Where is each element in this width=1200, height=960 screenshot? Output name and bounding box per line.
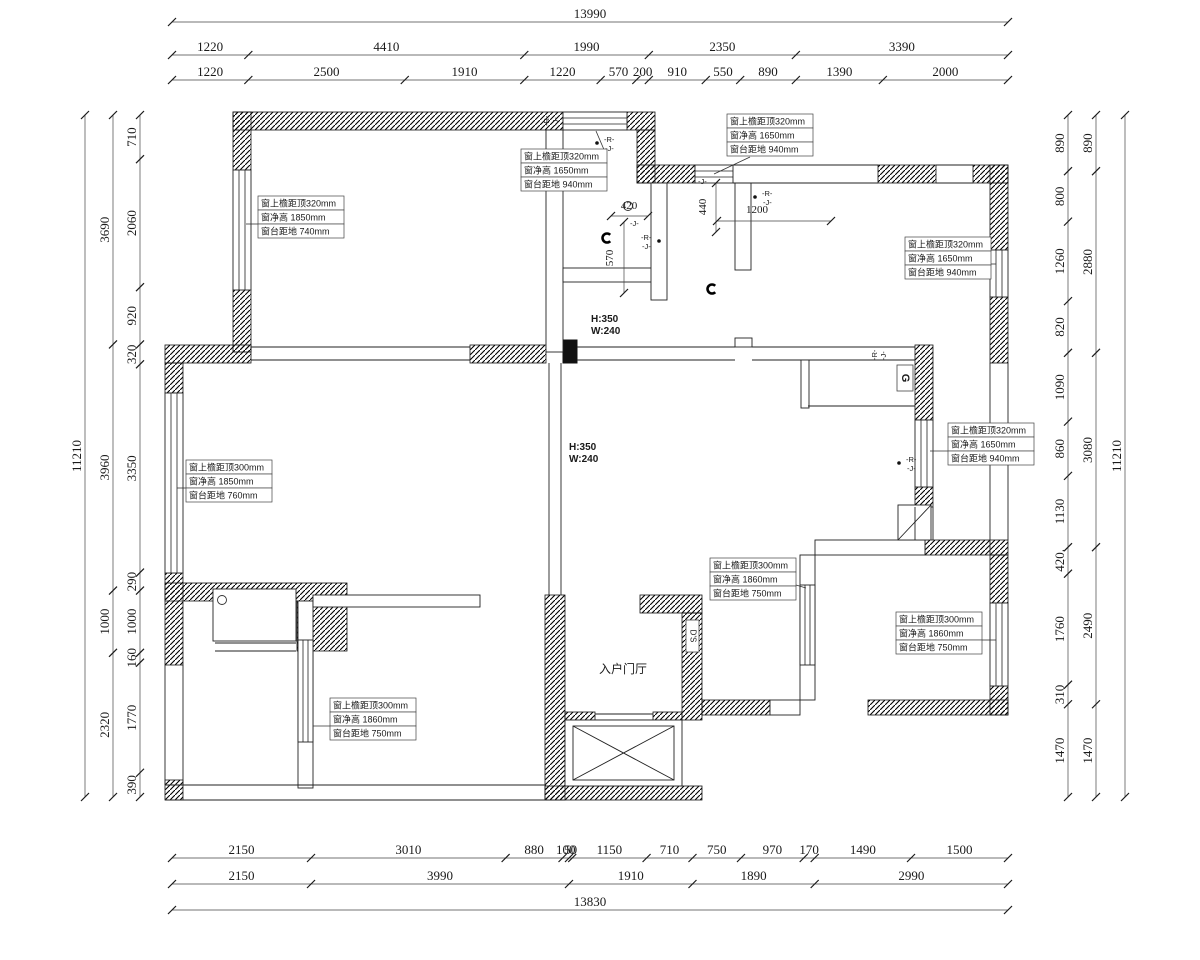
switch-marker: -R- [604,135,615,144]
room-label: 入户门厅 [599,661,647,676]
wall-segment [637,165,695,183]
window-annotation-text: 窗台距地 740mm [261,226,330,237]
switch-marker: -J- [551,117,560,126]
floor-plan-svg: 1399012204410199023503390122025001910122… [0,0,1200,960]
inline-dim-label: 440 [697,198,709,215]
dimension-label: 910 [668,64,688,79]
dimension-label: 4410 [373,39,399,54]
dimension-label: 800 [1052,187,1067,207]
dimension-label: 890 [758,64,778,79]
window-annotation-text: 窗台距地 750mm [333,728,402,739]
junction-marker: -J- [698,177,707,186]
window-annotation-text: 窗上檐距顶300mm [899,614,974,625]
dimension-label: 860 [1052,439,1067,459]
wall-segment [990,165,1008,250]
window [298,640,313,742]
wall-segment [627,112,655,130]
window-annotation-text: 窗净高 1650mm [524,165,589,176]
window [990,250,1008,297]
dimension-label: 3350 [124,455,139,481]
window-annotation-text: 窗台距地 940mm [524,179,593,190]
dimension-label: 2500 [314,64,340,79]
door-bump [735,338,752,347]
lamp-icon [708,285,716,294]
wall-segment [233,290,251,352]
flue [801,360,809,408]
switch-marker: -J- [907,464,916,473]
lamp-icon [603,233,611,242]
dimension-label: 3960 [97,455,112,481]
dimension-label: 13990 [574,6,607,21]
dimension-label: 2320 [97,712,112,738]
beam-label: H:350 [591,314,619,325]
switch-marker: -R- [542,115,551,126]
dimension-label: 1490 [850,842,876,857]
dimension-label: 2060 [124,210,139,236]
dimension-label: 970 [763,842,783,857]
dimension-label: 2490 [1080,613,1095,639]
dimension-label: 420. [1052,549,1067,572]
wall-segment [165,363,183,393]
wall-segment [915,487,933,507]
wall-segment [470,345,546,363]
window-annotation-text: 窗净高 1650mm [908,253,973,264]
dimension-label: 2880 [1080,249,1095,275]
wall-segment [565,712,595,720]
window-annotation-text: 窗台距地 940mm [730,144,799,155]
beam-label: W:240 [569,454,599,465]
dimension-label: 3990 [427,868,453,883]
dimension-label: 550 [713,64,733,79]
marker-dot [897,461,901,465]
switch-marker: -R- [762,189,773,198]
dimension-label: 2990 [898,868,924,883]
dimension-label: 750 [707,842,727,857]
wall-segment [702,700,770,715]
wall-segment [545,786,702,800]
dimension-label: 1470 [1052,738,1067,764]
switch-marker: -J- [605,144,614,153]
window-annotation-text: 窗上檐距顶320mm [261,198,336,209]
window [915,420,933,487]
dimension-label: 320 [124,345,139,365]
marker-dot [753,195,757,199]
dimension-label: 1220 [197,64,223,79]
dimension-label: 1390 [826,64,852,79]
dimension-label: 3690 [97,217,112,243]
window-annotation-text: 窗净高 1850mm [261,212,326,223]
dimension-label: 170 [799,842,819,857]
wall-segment [640,595,702,613]
dimension-label: 1910 [618,868,644,883]
wall-segment [878,165,936,183]
ds-label: D'S [688,630,697,643]
dimension-label: 1000 [97,609,112,635]
beam-block [563,340,577,363]
dimension-label: 820 [1052,317,1067,337]
switch-marker: -J- [763,198,772,207]
dimension-label: 1220 [549,64,575,79]
marker-dot [657,239,661,243]
dimension-label: 11210 [1109,440,1124,472]
wall-segment [233,112,251,170]
window-annotation-text: 窗台距地 940mm [951,453,1020,464]
dimension-label: 3390 [889,39,915,54]
window [233,170,251,290]
window-annotation-text: 窗净高 1650mm [951,439,1016,450]
switch-marker: -J- [879,351,888,360]
elevator-shaft [565,720,682,786]
wall-segment [915,345,933,420]
window [990,603,1008,686]
window-annotation-text: 窗净高 1860mm [333,714,398,725]
switch-marker: -R- [906,455,917,464]
dimension-label: 1910 [452,64,478,79]
inline-dim-label: 570 [604,249,616,266]
dimension-label: 880 [524,842,544,857]
window [800,585,815,665]
switch-marker: -R- [641,233,652,242]
wall-line [815,540,925,555]
dimension-label: 310 [1052,685,1067,705]
wall-line [313,595,480,607]
wall-line [770,700,800,715]
wall-line [563,268,655,282]
dimension-label: 710 [660,842,680,857]
dimension-label: 2150 [229,842,255,857]
wall-segment [165,780,183,800]
wall-segment [990,555,1008,603]
dimension-label: 920 [124,306,139,326]
switch-marker: -J- [642,242,651,251]
dimension-label: 2350 [709,39,735,54]
junction-marker: -J- [630,219,639,228]
window-annotation-text: 窗上檐距顶320mm [524,151,599,162]
dimension-label: 1150 [597,842,623,857]
dimension-label: 3010 [395,842,421,857]
wall-segment [545,595,565,800]
gas-meter-label: G [899,374,911,383]
beam-label: H:350 [569,442,597,453]
window-annotation-text: 窗台距地 940mm [908,267,977,278]
window-annotation-text: 窗台距地 760mm [189,490,258,501]
floor-plan-canvas: 1399012204410199023503390122025001910122… [0,0,1200,960]
window-annotation-text: 窗台距地 750mm [899,642,968,653]
window-annotation-text: 窗上檐距顶320mm [908,239,983,250]
window-annotation-text: 窗上檐距顶320mm [730,116,805,127]
window-annotation-text: 窗上檐距顶300mm [713,560,788,571]
window [165,393,183,573]
window-annotation-text: 窗净高 1850mm [189,476,254,487]
beam-label: W:240 [591,326,621,337]
dimension-label: 2000 [932,64,958,79]
wall-segment [990,297,1008,363]
wall-segment [233,112,563,130]
dimension-label: 1130 [1052,499,1067,525]
dimension-label: 710 [124,127,139,147]
dimension-label: 160 [124,648,139,668]
wall-segment [868,700,1008,715]
dimension-label: 290 [124,572,139,592]
dimension-label: 1470 [1080,738,1095,764]
window [563,112,627,130]
window-annotation-text: 窗净高 1860mm [899,628,964,639]
dimension-label: 2150 [229,868,255,883]
dimension-label: 1090 [1052,374,1067,400]
switch-marker: -R- [870,349,879,360]
wall-segment [925,540,1008,555]
dimension-label: 13830 [574,894,607,909]
window-annotation-text: 窗台距地 750mm [713,588,782,599]
window-annotation-text: 窗上檐距顶300mm [333,700,408,711]
dimension-label: 1770 [124,705,139,731]
dimension-label: 390 [124,775,139,795]
window-annotation-text: 窗净高 1650mm [730,130,795,141]
dimension-label: 1000 [124,609,139,635]
wall-segment [653,712,682,720]
dimension-label: 200 [633,64,653,79]
dimension-label: 1260 [1052,248,1067,274]
window-annotation-text: 窗上檐距顶320mm [951,425,1026,436]
dimension-label: 3080 [1080,437,1095,463]
dimension-label: 1220 [197,39,223,54]
dimension-label: 570 [609,64,629,79]
dimension-label: 890 [1052,133,1067,153]
dimension-label: 1500 [947,842,973,857]
dimension-label: 1990 [574,39,600,54]
dimension-label: 11210 [69,440,84,472]
marker-dot [595,141,599,145]
dimension-label: 890 [1080,133,1095,153]
window-annotation-text: 窗净高 1860mm [713,574,778,585]
dimension-label: 1890 [741,868,767,883]
window-annotation-text: 窗上檐距顶300mm [189,462,264,473]
wall-segment [165,345,251,363]
wall-line [735,183,751,270]
dimension-label: 1760 [1052,616,1067,642]
